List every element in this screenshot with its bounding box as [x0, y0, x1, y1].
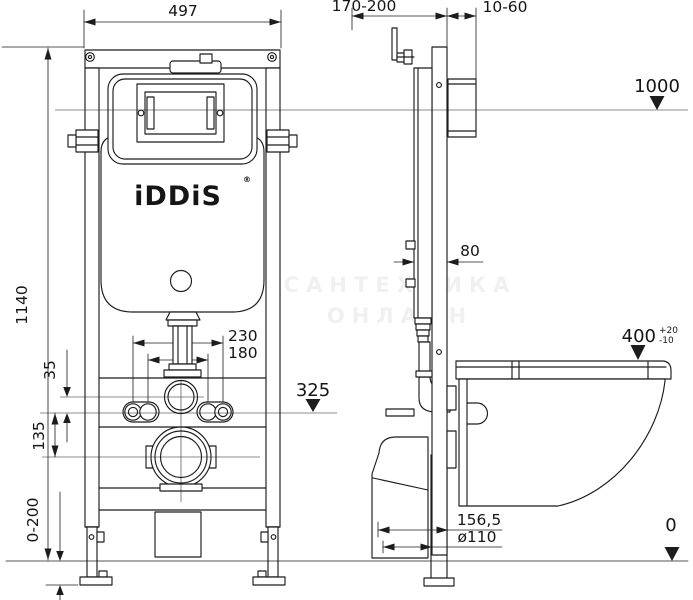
registered-mark: ®: [243, 175, 251, 184]
wall-bracket-left: [68, 130, 98, 152]
dim-drain-offset: 156,5: [457, 511, 501, 529]
front-view: iDDiS ®: [68, 50, 297, 585]
wall-bracket-right: [267, 130, 297, 152]
dim-front-width: 497: [168, 2, 198, 20]
dim-seat-tol-minus: -10: [659, 336, 674, 346]
stud-side: [386, 409, 414, 416]
housing-clip: [170, 61, 221, 73]
watermark-line1: САНТЕХНИКА: [284, 273, 517, 297]
dim-frame-height: 1140: [13, 285, 31, 324]
tank-profile: [414, 68, 432, 318]
flush-pipe: [173, 326, 192, 364]
dim-profile-depth: 80: [460, 242, 480, 260]
watermark: САНТЕХНИКА ОНЛАЙН: [284, 273, 517, 328]
level-marker-icon: [306, 399, 321, 412]
frame-profile: [432, 47, 447, 555]
dim-floor-level: 0: [665, 515, 676, 536]
drawing-canvas: САНТЕХНИКА ОНЛАЙН: [0, 0, 693, 600]
left-foot-plate: [80, 577, 112, 585]
watermark-line2: ОНЛАЙН: [327, 303, 473, 328]
installation-drawing: САНТЕХНИКА ОНЛАЙН: [0, 0, 693, 600]
dim-offset-35: 35: [41, 360, 59, 380]
dim-depth-range: 170-200: [332, 0, 397, 15]
stud-fixing-left: [123, 402, 159, 422]
right-foot-plate: [253, 577, 285, 585]
drain-stub: [447, 431, 456, 468]
level-marker-icon: [665, 547, 680, 561]
water-inlet: [392, 28, 397, 60]
dim-level-1000: 1000: [634, 76, 680, 97]
dim-offset-135: 135: [30, 421, 48, 451]
dim-stud-inner: 180: [228, 344, 258, 362]
dim-seat-tol-plus: +20: [659, 326, 678, 336]
level-marker-icon: [650, 96, 665, 110]
seat: [456, 361, 671, 379]
toilet-bowl: [456, 361, 671, 506]
dim-wall-gap: 10-60: [482, 0, 527, 16]
drain-elbow: [372, 437, 428, 558]
top-wall-bracket: [448, 79, 476, 137]
flush-stub: [447, 386, 456, 410]
bowl-body: [459, 379, 665, 506]
level-marker-icon: [631, 345, 646, 360]
tank-outlet: [166, 312, 200, 320]
dim-seat-height: 400: [622, 326, 656, 347]
access-window: [137, 84, 224, 142]
dim-stud-outer: 230: [228, 327, 258, 345]
stud-fixing-right: [197, 402, 233, 422]
dim-level-325: 325: [296, 380, 330, 401]
center-support-box: [155, 512, 201, 557]
side-view: [372, 28, 671, 586]
brand-logo: iDDiS: [134, 181, 222, 212]
dim-drain-diameter: ø110: [457, 528, 496, 546]
dim-foot-adjust: 0-200: [24, 497, 42, 542]
